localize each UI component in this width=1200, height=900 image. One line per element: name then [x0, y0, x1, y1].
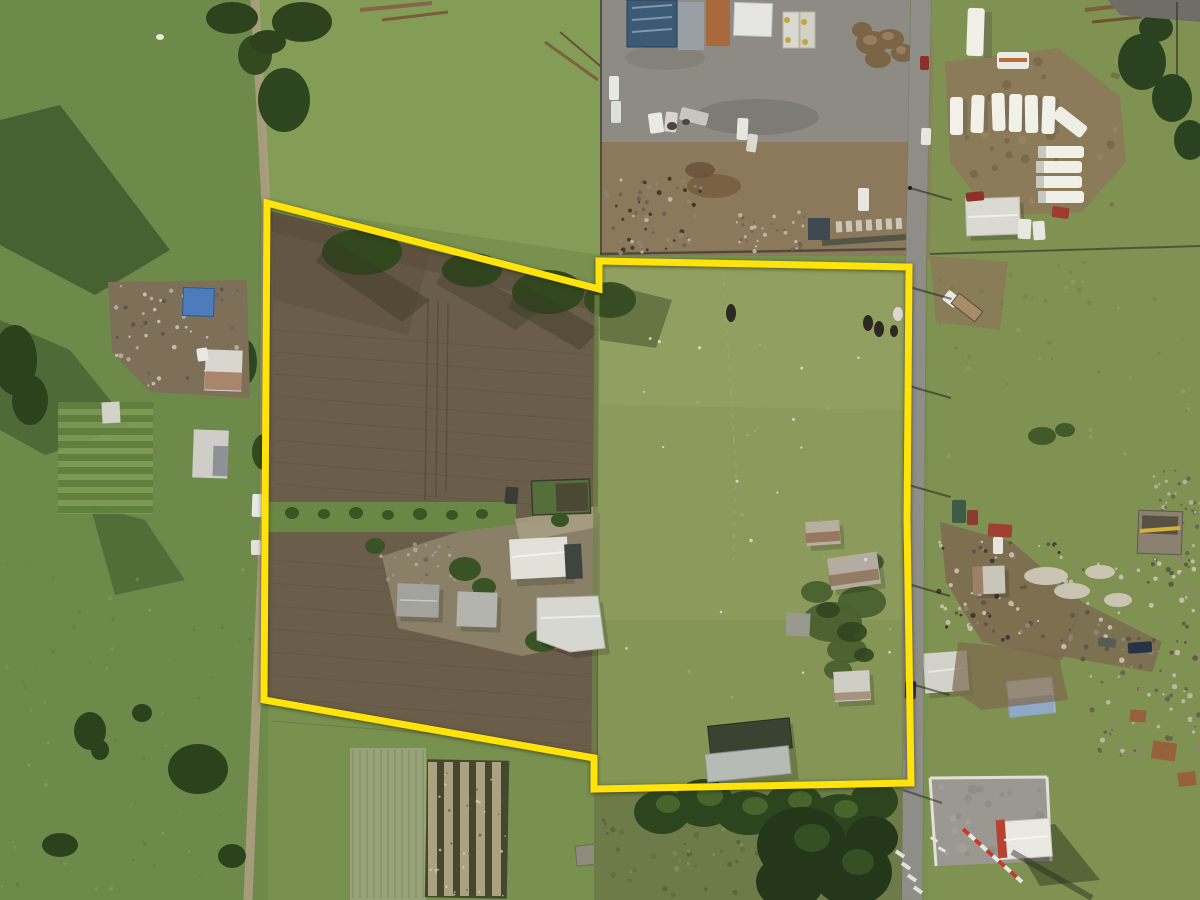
- lumber-piles: [1054, 583, 1090, 599]
- cows-dark: [890, 325, 898, 337]
- lane-bushes: [382, 510, 394, 520]
- aerial-photo: [0, 0, 1200, 900]
- bushes-bottomleft: [168, 744, 228, 794]
- br-yard-dirt: [952, 642, 1068, 710]
- container-white: [733, 2, 772, 36]
- parcel-shrubs: [801, 581, 833, 603]
- farm-car: [196, 347, 209, 361]
- dumpster-marks: [784, 17, 790, 23]
- road-car-white: [921, 128, 932, 145]
- east-bushes: [1028, 427, 1056, 445]
- garden-plot-soil: [556, 482, 589, 511]
- farm-house-main: [509, 537, 569, 580]
- lane-bushes: [446, 510, 458, 520]
- parcel-shrubs-dark: [816, 602, 840, 618]
- mound-highlights: [863, 35, 877, 45]
- parcel-shrubs-dark: [854, 648, 874, 662]
- white-cars-lot: [1017, 219, 1031, 240]
- junkyard-shed-rust: [973, 566, 984, 594]
- farmstead-bushes: [365, 538, 385, 554]
- cows-dark: [874, 321, 884, 337]
- bus-row-shadows: [1038, 97, 1042, 133]
- dumpster-1: [783, 12, 799, 48]
- shed-a-ridge: [400, 600, 437, 601]
- east-fence-vegetation: [594, 295, 597, 757]
- bus-row: [1009, 94, 1023, 132]
- yard-car-1: [736, 118, 748, 141]
- yard-van-1: [609, 76, 619, 100]
- gum-highlights: [794, 824, 830, 852]
- lane-bushes: [413, 508, 427, 520]
- east-bushes: [1055, 423, 1075, 437]
- bus-row-shadows: [984, 97, 988, 133]
- rust-debris: [1151, 740, 1177, 761]
- farmstead-bushes: [449, 557, 481, 581]
- dumpster-marks: [801, 19, 807, 25]
- yard-building-gray: [678, 2, 704, 50]
- tree-row-highlights: [834, 800, 858, 818]
- pole-dots: [908, 186, 912, 190]
- white-vehicle-track: [251, 540, 261, 555]
- bus-stack-cabs: [1038, 146, 1046, 158]
- bus-vertical-shadow: [984, 12, 992, 58]
- lane-bushes: [285, 507, 299, 519]
- parcel-shrubs-dark: [837, 622, 867, 642]
- bus-row: [991, 93, 1005, 131]
- lumber-piles: [1085, 565, 1115, 579]
- bushes-bottomleft: [91, 740, 109, 760]
- blue-car: [1128, 641, 1153, 654]
- blue-tarp-shed: [183, 287, 215, 316]
- parcel-shed-3: [785, 612, 810, 636]
- cows-dark: [863, 315, 873, 331]
- yard-truck-bits: [682, 119, 690, 125]
- farm-house-rust: [205, 371, 243, 390]
- bus-row-shadows: [963, 99, 967, 135]
- big-shed: [537, 596, 605, 652]
- cow-white: [893, 307, 903, 321]
- mound-highlights: [896, 46, 906, 54]
- white-truck-junkyard: [993, 537, 1003, 554]
- lumber-piles: [1024, 567, 1068, 585]
- tree-row-highlights: [742, 797, 768, 815]
- gravel-stain-1: [695, 99, 819, 135]
- red-truck: [967, 510, 978, 525]
- dump-truck: [988, 523, 1013, 538]
- bushes-bottomleft: [42, 833, 78, 857]
- tree-row-highlights: [656, 795, 680, 813]
- track-tree-1: [258, 68, 310, 132]
- farmstead-bushes: [551, 513, 569, 527]
- lane-bushes: [318, 509, 330, 519]
- top-trees: [250, 30, 286, 54]
- red-car-1: [966, 191, 985, 202]
- aerial-photo-canvas: [0, 0, 1200, 900]
- farm-building-2-panel: [212, 446, 228, 477]
- lane-bushes: [349, 507, 363, 519]
- bus-vertical: [966, 8, 985, 57]
- yard-van-2: [611, 101, 621, 123]
- lane-bushes: [476, 509, 488, 519]
- tree-row-highlights: [788, 791, 812, 809]
- red-car-2: [1051, 206, 1069, 219]
- dark-car-farmstead: [504, 487, 518, 505]
- gray-car: [1098, 637, 1117, 648]
- yard-dark-shed: [808, 218, 830, 240]
- dumpster-marks: [785, 37, 791, 43]
- lumber-piles: [1104, 593, 1132, 607]
- gravel-mounds: [865, 50, 891, 68]
- white-speck: [156, 34, 164, 40]
- bus-stack-cabs: [1036, 176, 1044, 188]
- yard-truck-bits: [667, 122, 677, 130]
- bus-row: [950, 97, 963, 135]
- bus-stack-cabs: [1036, 161, 1044, 173]
- small-shed-left: [101, 402, 120, 424]
- yard-truck-1: [648, 112, 665, 134]
- road-car-red: [920, 56, 929, 70]
- yard-van-right: [858, 188, 869, 211]
- topright-trees: [1152, 74, 1192, 122]
- gum-highlights: [842, 849, 874, 875]
- cows-dark: [726, 304, 736, 322]
- bushes-bottomleft: [218, 844, 246, 868]
- house-dark-end: [564, 544, 583, 580]
- bus-row: [970, 95, 984, 133]
- rust-debris: [1177, 771, 1196, 787]
- mound-highlights: [882, 32, 894, 40]
- shed-b: [456, 591, 497, 627]
- green-truck: [952, 500, 966, 523]
- top-trees: [206, 2, 258, 34]
- bus-stack-cabs: [1038, 191, 1046, 203]
- white-cars-lot: [1032, 221, 1045, 241]
- left-edge-trees: [12, 375, 48, 425]
- yard-puddle-2: [685, 162, 715, 178]
- bushes-bottomleft: [132, 704, 152, 722]
- dumpster-marks: [802, 39, 808, 45]
- bus-row: [1025, 95, 1039, 133]
- container-orange: [706, 0, 730, 46]
- rust-debris: [1130, 709, 1147, 722]
- bus-row-shadows: [1005, 95, 1009, 131]
- gate-dirt: [930, 256, 1008, 330]
- road-dirt-edge-2: [903, 520, 904, 760]
